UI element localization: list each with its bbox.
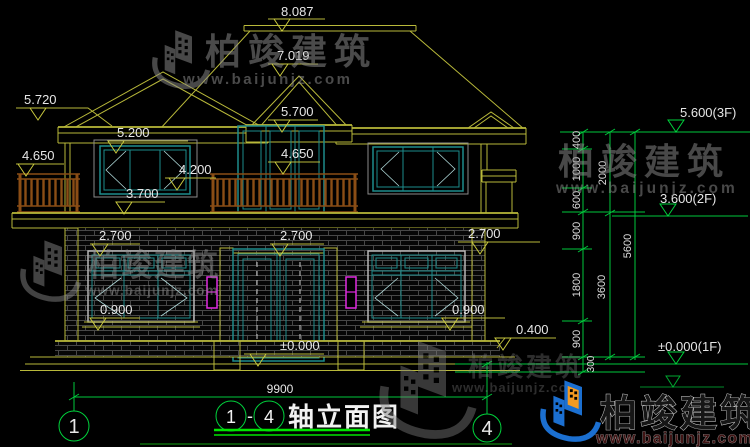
brand-text: 柏竣建筑 [205,31,377,72]
brand-text: 柏竣建筑 [558,141,730,182]
axis-bubble-4-label: 4 [481,418,492,440]
dim-left-rail: 4.650 [22,148,55,163]
dim-f1-head-right: 2.700 [468,226,501,241]
chain-seg-900b: 900 [571,330,583,348]
dim-ridge: 8.087 [281,4,314,19]
window-2f-right [368,143,468,194]
elevation-canvas: 8.087 7.019 5.720 5.200 5.700 4.650 4.65… [0,0,750,447]
second-floor-band [12,213,518,228]
title-block: 1 - 4 轴立面图 [140,401,512,444]
dim-left-eave: 5.720 [24,92,57,107]
watermark-top: 柏竣建筑 www.baijunjz.com [155,30,377,88]
balcony-railing [17,174,358,212]
dim-center-rail: 4.650 [281,146,314,161]
brand-url: www.baijunjz.com [85,283,219,298]
chain-seg-300: 300 [586,355,597,372]
dim-center-eave: 5.700 [281,104,314,119]
dim-plinth: 0.400 [516,322,549,337]
dim-f1-sill-right: 0.900 [452,302,485,317]
eave-band-right [336,128,526,144]
watermark-right: 柏竣建筑 www.baijunjz.com [555,141,738,197]
dim-balcony-floor: 3.700 [126,186,159,201]
watermark-bottom-right-logo: 柏竣建筑 www.baijunjz.com [543,380,750,447]
brand-url: www.baijunjz.com [555,180,738,197]
brand-text: 柏竣建筑 [88,248,220,283]
title-axis-1: 1 [226,407,236,427]
chain-sub-3600: 3600 [596,275,608,299]
brand-text: 柏竣建筑 [600,392,750,434]
dim-f1-head-center: 2.700 [280,228,313,243]
dim-left-window-head: 5.200 [117,125,150,140]
axis-bubble-1-label: 1 [68,416,79,438]
brand-url: www.baijunjz.com [595,430,750,447]
brand-url: www.baijunjz.com [182,71,352,88]
dim-f1-head-left: 2.700 [99,228,132,243]
dim-f1-sill-left: 0.900 [100,302,133,317]
chain-seg-900a: 900 [571,222,583,240]
chain-total-5600: 5600 [622,234,634,258]
watermark-left: 柏竣建筑 www.baijunjz.com [23,240,220,299]
level-3f: 5.600(3F) [680,105,736,120]
chain-seg-1800: 1800 [571,273,583,297]
brand-url: www.baijunjz.com [451,380,580,395]
title-axis-4: 4 [264,407,274,427]
chimney [482,170,516,213]
dim-ground: ±0.000 [280,338,320,353]
dim-overall-width: 9900 [267,382,294,396]
cad-elevation-drawing: 8.087 7.019 5.720 5.200 5.700 4.650 4.65… [0,0,750,447]
dim-left-window-sill: 4.200 [179,162,212,177]
brand-text: 柏竣建筑 [468,352,584,382]
title-separator: - [247,406,253,426]
